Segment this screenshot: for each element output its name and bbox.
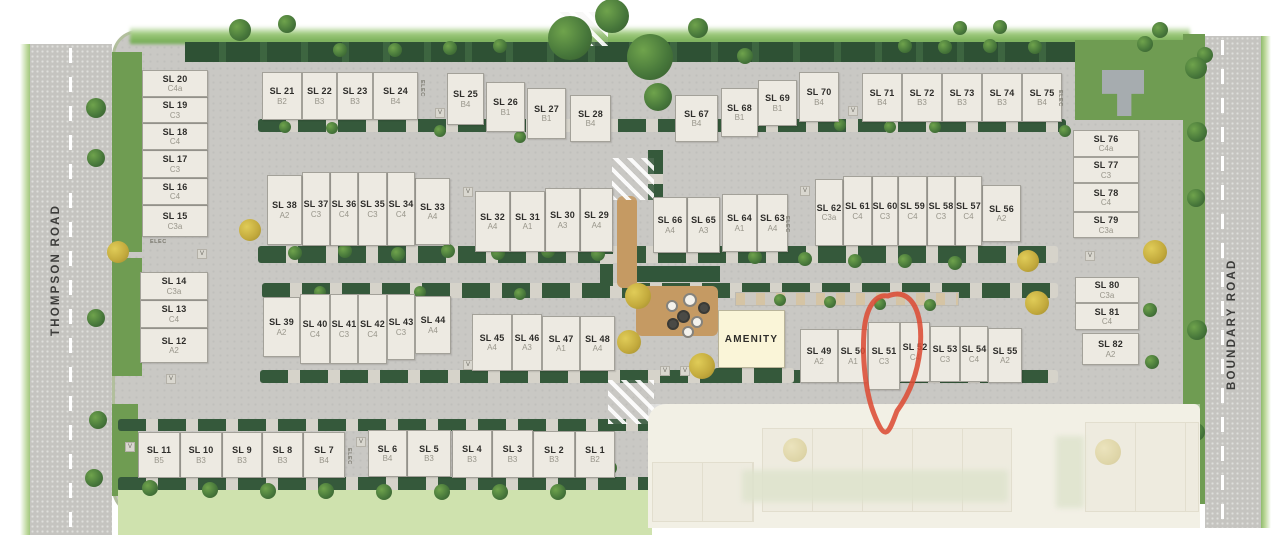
lot-plan-code: A4 — [428, 326, 438, 335]
lot-sl-79[interactable]: SL 79C3a — [1073, 212, 1139, 238]
lot-sl-32[interactable]: SL 32A4 — [475, 191, 510, 252]
lot-number: SL 75 — [1030, 88, 1055, 98]
right-road-fringe — [1261, 36, 1271, 528]
lot-number: SL 44 — [421, 315, 446, 325]
lot-plan-code: B4 — [391, 97, 401, 106]
lot-plan-code: B3 — [508, 455, 518, 464]
lot-sl-9[interactable]: SL 9B3 — [222, 432, 262, 478]
tree-icon — [493, 39, 507, 53]
tree-icon — [87, 149, 105, 167]
lot-plan-code: B4 — [383, 454, 393, 463]
lot-number: SL 29 — [584, 210, 609, 220]
lot-number: SL 24 — [383, 86, 408, 96]
lot-number: SL 46 — [515, 333, 540, 343]
lot-plan-code: B4 — [692, 119, 702, 128]
lot-sl-4[interactable]: SL 4B3 — [452, 430, 492, 478]
lot-number: SL 52 — [903, 342, 928, 352]
lot-plan-code: B4 — [1037, 98, 1047, 107]
tree-icon — [87, 309, 105, 327]
lot-sl-45[interactable]: SL 45A4 — [472, 314, 512, 371]
lot-plan-code: B3 — [237, 456, 247, 465]
lot-sl-2[interactable]: SL 2B3 — [533, 431, 575, 478]
lot-plan-code: A2 — [814, 357, 824, 366]
lot-number: SL 60 — [873, 201, 898, 211]
playground-equipment-icon — [682, 326, 694, 338]
yellow-tree-icon — [617, 330, 641, 354]
tree-icon — [983, 39, 997, 53]
lot-sl-30[interactable]: SL 30A3 — [545, 188, 580, 252]
lot-plan-code: B1 — [735, 113, 745, 122]
lot-plan-code: A1 — [523, 222, 533, 231]
lot-sl-61[interactable]: SL 61C4 — [843, 176, 872, 246]
lot-number: SL 22 — [307, 86, 332, 96]
lot-number: SL 7 — [314, 445, 334, 455]
tree-icon — [1185, 57, 1207, 79]
lot-sl-73[interactable]: SL 73B3 — [942, 73, 982, 122]
tree-icon — [929, 121, 941, 133]
tree-icon — [824, 296, 836, 308]
lot-number: SL 56 — [989, 204, 1014, 214]
lot-sl-18[interactable]: SL 18C4 — [142, 123, 208, 150]
lot-plan-code: C3 — [311, 210, 321, 219]
tree-icon — [142, 480, 158, 496]
lot-number: SL 38 — [272, 200, 297, 210]
fade-overlay — [648, 404, 1200, 528]
lot-number: SL 6 — [378, 444, 398, 454]
lot-plan-code: A3 — [558, 221, 568, 230]
tree-icon — [278, 15, 296, 33]
lot-number: SL 55 — [993, 346, 1018, 356]
lot-number: SL 61 — [845, 201, 870, 211]
tree-icon — [388, 43, 402, 57]
lot-number: SL 19 — [163, 100, 188, 110]
tree-icon — [89, 411, 107, 429]
visitor-parking-marker: V — [166, 374, 176, 384]
lot-plan-code: C4 — [910, 353, 920, 362]
lot-sl-15[interactable]: SL 15C3a — [142, 205, 208, 237]
lot-plan-code: C3 — [170, 111, 180, 120]
lot-number: SL 25 — [453, 89, 478, 99]
lot-number: SL 15 — [163, 211, 188, 221]
lot-sl-81[interactable]: SL 81C4 — [1075, 303, 1139, 330]
lot-sl-22[interactable]: SL 22B3 — [302, 72, 337, 120]
yellow-tree-icon — [239, 219, 261, 241]
lot-plan-code: C4 — [963, 212, 973, 221]
lot-sl-59[interactable]: SL 59C4 — [898, 176, 927, 246]
lot-plan-code: C3a — [168, 222, 183, 231]
lot-plan-code: A4 — [768, 224, 778, 233]
lot-plan-code: C3a — [822, 213, 837, 222]
lot-plan-code: C4 — [1101, 198, 1111, 207]
lot-number: SL 79 — [1094, 215, 1119, 225]
lot-number: SL 30 — [550, 210, 575, 220]
yellow-tree-icon — [107, 241, 129, 263]
lot-number: SL 74 — [990, 88, 1015, 98]
lot-number: SL 76 — [1094, 134, 1119, 144]
lot-plan-code: C4a — [168, 84, 183, 93]
lot-plan-code: C3a — [1100, 291, 1115, 300]
lot-sl-26[interactable]: SL 26B1 — [486, 82, 525, 132]
lot-plan-code: C3 — [339, 330, 349, 339]
tree-icon — [338, 244, 352, 258]
lot-number: SL 45 — [480, 333, 505, 343]
lot-sl-65[interactable]: SL 65A3 — [687, 197, 720, 253]
lot-sl-49[interactable]: SL 49A2 — [800, 329, 838, 383]
visitor-parking-marker: V — [800, 186, 810, 196]
lot-number: SL 39 — [269, 317, 294, 327]
lot-plan-code: B3 — [997, 98, 1007, 107]
lot-number: SL 71 — [870, 88, 895, 98]
lot-sl-52[interactable]: SL 52C4 — [900, 322, 930, 382]
lot-sl-60[interactable]: SL 60C3 — [872, 176, 898, 246]
lot-sl-69[interactable]: SL 69B1 — [758, 80, 797, 126]
lot-number: SL 41 — [332, 319, 357, 329]
crosswalk — [612, 158, 654, 200]
lot-number: SL 27 — [534, 104, 559, 114]
lot-sl-6[interactable]: SL 6B4 — [368, 430, 407, 477]
lot-number: SL 31 — [515, 212, 540, 222]
lot-sl-37[interactable]: SL 37C3 — [302, 172, 330, 246]
tree-icon — [514, 288, 526, 300]
lot-plan-code: A4 — [428, 212, 438, 221]
lot-number: SL 59 — [900, 201, 925, 211]
lot-number: SL 16 — [163, 182, 188, 192]
lot-sl-76[interactable]: SL 76C4a — [1073, 130, 1139, 157]
lot-number: SL 67 — [684, 109, 709, 119]
lot-sl-31[interactable]: SL 31A1 — [510, 191, 545, 252]
tree-icon — [1059, 125, 1071, 137]
tree-icon — [550, 484, 566, 500]
lot-sl-62[interactable]: SL 62C3a — [815, 179, 843, 246]
lot-sl-75[interactable]: SL 75B4 — [1022, 73, 1062, 122]
visitor-parking-marker: V — [197, 249, 207, 259]
lot-plan-code: A1 — [848, 357, 858, 366]
lot-number: SL 32 — [480, 212, 505, 222]
tree-icon — [318, 483, 334, 499]
lot-number: SL 23 — [343, 86, 368, 96]
tree-icon — [884, 121, 896, 133]
lot-sl-10[interactable]: SL 10B3 — [180, 432, 222, 478]
lot-sl-35[interactable]: SL 35C3 — [358, 172, 387, 246]
lot-number: SL 51 — [872, 346, 897, 356]
lot-plan-code: C4a — [1099, 144, 1114, 153]
lot-number: SL 49 — [807, 346, 832, 356]
lot-sl-40[interactable]: SL 40C4 — [300, 294, 330, 364]
lot-sl-66[interactable]: SL 66A4 — [653, 197, 687, 253]
lot-plan-code: A1 — [735, 224, 745, 233]
road-centerline — [1221, 40, 1224, 524]
lot-sl-23[interactable]: SL 23B3 — [337, 72, 373, 120]
lot-sl-50[interactable]: SL 50A1 — [838, 329, 868, 383]
lot-number: SL 73 — [950, 88, 975, 98]
lot-sl-78[interactable]: SL 78C4 — [1073, 183, 1139, 212]
lot-plan-code: B4 — [319, 456, 329, 465]
lot-sl-12[interactable]: SL 12A2 — [140, 328, 208, 363]
tree-icon — [333, 43, 347, 57]
yellow-tree-icon — [1017, 250, 1039, 272]
visitor-parking-marker: V — [848, 106, 858, 116]
lot-sl-8[interactable]: SL 8B3 — [262, 432, 303, 478]
lot-sl-48[interactable]: SL 48A4 — [580, 316, 615, 371]
lot-sl-43[interactable]: SL 43C3 — [387, 294, 415, 360]
lot-plan-code: C4 — [170, 137, 180, 146]
lot-sl-67[interactable]: SL 67B4 — [675, 95, 718, 142]
lot-plan-code: C3a — [1099, 226, 1114, 235]
lot-number: SL 72 — [910, 88, 935, 98]
visitor-parking-marker: V — [463, 187, 473, 197]
lot-plan-code: B4 — [461, 100, 471, 109]
tree-icon — [443, 41, 457, 55]
tree-icon — [326, 122, 338, 134]
lot-plan-code: A4 — [593, 344, 603, 353]
tree-icon — [260, 483, 276, 499]
lot-number: SL 8 — [273, 445, 293, 455]
tree-icon — [514, 131, 526, 143]
lot-number: SL 4 — [462, 444, 482, 454]
tree-icon — [434, 484, 450, 500]
lot-plan-code: B1 — [773, 104, 783, 113]
lot-number: SL 21 — [270, 86, 295, 96]
lot-number: SL 18 — [163, 127, 188, 137]
lot-sl-33[interactable]: SL 33A4 — [415, 178, 450, 245]
lot-sl-21[interactable]: SL 21B2 — [262, 72, 302, 120]
lot-number: SL 3 — [503, 444, 523, 454]
lot-sl-80[interactable]: SL 80C3a — [1075, 277, 1139, 303]
tree-icon — [1152, 22, 1168, 38]
lot-plan-code: B1 — [542, 114, 552, 123]
lot-plan-code: B3 — [917, 98, 927, 107]
tree-icon — [548, 16, 592, 60]
tree-icon — [898, 39, 912, 53]
lot-sl-1[interactable]: SL 1B2 — [575, 431, 615, 478]
lot-plan-code: B3 — [467, 455, 477, 464]
playground-equipment-icon — [667, 318, 679, 330]
lot-sl-20[interactable]: SL 20C4a — [142, 70, 208, 97]
tree-icon — [85, 469, 103, 487]
tree-icon — [1187, 189, 1205, 207]
visitor-parking-marker: V — [356, 437, 366, 447]
lot-number: SL 68 — [727, 103, 752, 113]
lot-plan-code: B4 — [814, 98, 824, 107]
tree-icon — [627, 34, 673, 80]
playground-equipment-icon — [691, 316, 703, 328]
tree-icon — [688, 18, 708, 38]
lot-plan-code: B2 — [277, 97, 287, 106]
road-centerline — [69, 48, 72, 531]
playground-equipment-icon — [666, 300, 678, 312]
tree-icon — [938, 40, 952, 54]
elec-marker: ELEC — [784, 216, 790, 233]
lot-number: SL 43 — [389, 317, 414, 327]
thompson-road-label: THOMPSON ROAD — [50, 204, 62, 336]
lot-sl-25[interactable]: SL 25B4 — [447, 73, 484, 125]
lot-sl-28[interactable]: SL 28B4 — [570, 95, 611, 142]
lot-sl-47[interactable]: SL 47A1 — [542, 316, 580, 371]
lot-number: SL 20 — [163, 74, 188, 84]
lot-plan-code: B1 — [501, 108, 511, 117]
tree-icon — [434, 125, 446, 137]
tree-icon — [948, 256, 962, 270]
lot-plan-code: C3 — [170, 165, 180, 174]
lot-plan-code: A1 — [556, 344, 566, 353]
sand-path — [617, 196, 637, 288]
lot-plan-code: C3 — [367, 210, 377, 219]
lot-number: SL 13 — [162, 304, 187, 314]
lot-number: SL 10 — [189, 445, 214, 455]
lot-number: SL 78 — [1094, 188, 1119, 198]
lot-number: SL 2 — [544, 445, 564, 455]
lot-sl-16[interactable]: SL 16C4 — [142, 178, 208, 205]
lot-sl-74[interactable]: SL 74B3 — [982, 73, 1022, 122]
visitor-parking-marker: V — [463, 360, 473, 370]
lot-number: SL 81 — [1095, 307, 1120, 317]
lot-sl-58[interactable]: SL 58C3 — [927, 176, 955, 246]
lot-plan-code: A2 — [997, 214, 1007, 223]
lot-number: SL 57 — [956, 201, 981, 211]
lot-sl-13[interactable]: SL 13C4 — [140, 300, 208, 328]
lot-sl-51[interactable]: SL 51C3 — [868, 322, 900, 390]
lot-sl-7[interactable]: SL 7B4 — [303, 432, 345, 478]
lot-plan-code: A3 — [522, 343, 532, 352]
lot-sl-27[interactable]: SL 27B1 — [527, 88, 566, 139]
playground-hedge — [636, 266, 720, 282]
left-lawn — [112, 52, 142, 252]
tree-icon — [1187, 122, 1207, 142]
playground-equipment-icon — [698, 302, 710, 314]
lot-sl-57[interactable]: SL 57C4 — [955, 176, 982, 246]
lot-sl-70[interactable]: SL 70B4 — [799, 72, 839, 122]
lot-sl-39[interactable]: SL 39A2 — [263, 297, 300, 357]
tree-icon — [874, 298, 886, 310]
lot-sl-14[interactable]: SL 14C3a — [140, 272, 208, 300]
lot-plan-code: A4 — [488, 222, 498, 231]
tree-icon — [441, 244, 455, 258]
lot-plan-code: C3 — [936, 212, 946, 221]
lot-plan-code: C3 — [880, 212, 890, 221]
lot-plan-code: A2 — [280, 211, 290, 220]
lot-sl-19[interactable]: SL 19C3 — [142, 97, 208, 123]
lot-plan-code: A2 — [1106, 350, 1116, 359]
lot-sl-77[interactable]: SL 77C3 — [1073, 157, 1139, 183]
lot-number: SL 65 — [691, 215, 716, 225]
lot-number: SL 77 — [1094, 160, 1119, 170]
lot-sl-29[interactable]: SL 29A4 — [580, 188, 613, 252]
tree-icon — [1137, 36, 1153, 52]
lot-plan-code: C4 — [367, 330, 377, 339]
lot-sl-24[interactable]: SL 24B4 — [373, 72, 418, 120]
lot-number: SL 36 — [332, 199, 357, 209]
tree-icon — [492, 484, 508, 500]
lot-plan-code: C4 — [170, 192, 180, 201]
lot-sl-36[interactable]: SL 36C4 — [330, 172, 358, 246]
lot-plan-code: C4 — [339, 210, 349, 219]
elec-marker: ELEC — [150, 239, 167, 245]
lot-sl-55[interactable]: SL 55A2 — [988, 328, 1022, 383]
lot-sl-3[interactable]: SL 3B3 — [492, 430, 533, 478]
lot-sl-56[interactable]: SL 56A2 — [982, 185, 1021, 242]
visitor-parking-marker: V — [1085, 251, 1095, 261]
visitor-parking-marker: V — [660, 366, 670, 376]
lot-sl-46[interactable]: SL 46A3 — [512, 314, 542, 371]
lot-plan-code: B4 — [586, 119, 596, 128]
amenity-building: AMENITY — [718, 310, 785, 368]
lot-plan-code: B3 — [278, 456, 288, 465]
lot-sl-68[interactable]: SL 68B1 — [721, 88, 758, 137]
lot-number: SL 35 — [360, 199, 385, 209]
lot-sl-64[interactable]: SL 64A1 — [722, 194, 757, 252]
elec-marker: ELEC — [419, 80, 425, 97]
tree-icon — [898, 254, 912, 268]
lot-sl-5[interactable]: SL 5B3 — [407, 430, 451, 477]
lot-plan-code: C3 — [1101, 171, 1111, 180]
tree-icon — [288, 246, 302, 260]
lot-number: SL 17 — [163, 154, 188, 164]
lot-sl-44[interactable]: SL 44A4 — [415, 296, 451, 354]
playground-equipment-icon — [683, 293, 697, 307]
lot-sl-72[interactable]: SL 72B3 — [902, 73, 942, 122]
elec-marker: ELEC — [346, 448, 352, 465]
lot-number: SL 47 — [549, 334, 574, 344]
yellow-tree-icon — [625, 283, 651, 309]
lot-sl-54[interactable]: SL 54C4 — [960, 326, 988, 382]
lot-number: SL 37 — [304, 199, 329, 209]
lot-number: SL 5 — [419, 444, 439, 454]
lot-number: SL 14 — [162, 276, 187, 286]
lot-plan-code: A2 — [169, 346, 179, 355]
tree-icon — [924, 299, 936, 311]
lot-number: SL 80 — [1095, 280, 1120, 290]
tree-icon — [993, 20, 1007, 34]
lot-number: SL 11 — [147, 445, 171, 455]
lot-plan-code: B3 — [549, 455, 559, 464]
tree-icon — [774, 294, 786, 306]
lot-number: SL 48 — [585, 334, 610, 344]
lot-sl-34[interactable]: SL 34C4 — [387, 172, 415, 246]
yellow-tree-icon — [689, 353, 715, 379]
lot-plan-code: C4 — [396, 210, 406, 219]
lot-sl-11[interactable]: SL 11B5 — [138, 432, 180, 478]
tree-icon — [848, 254, 862, 268]
tree-icon — [1145, 355, 1159, 369]
lot-plan-code: A3 — [699, 226, 709, 235]
tree-icon — [1028, 40, 1042, 54]
tree-icon — [279, 121, 291, 133]
lot-number: SL 26 — [493, 97, 518, 107]
lot-plan-code: C3a — [167, 287, 182, 296]
tree-icon — [1187, 320, 1207, 340]
lot-sl-53[interactable]: SL 53C3 — [930, 326, 960, 382]
lot-plan-code: B2 — [590, 455, 600, 464]
tree-icon — [953, 21, 967, 35]
tree-icon — [1143, 303, 1157, 317]
lot-sl-82[interactable]: SL 82A2 — [1082, 333, 1139, 365]
lot-sl-17[interactable]: SL 17C3 — [142, 150, 208, 178]
lot-sl-42[interactable]: SL 42C4 — [358, 294, 387, 364]
lot-plan-code: A4 — [592, 221, 602, 230]
tree-icon — [798, 252, 812, 266]
tree-icon — [391, 247, 405, 261]
yellow-tree-icon — [1025, 291, 1049, 315]
lot-sl-71[interactable]: SL 71B4 — [862, 73, 902, 122]
lot-sl-38[interactable]: SL 38A2 — [267, 175, 302, 245]
lot-number: SL 69 — [765, 93, 790, 103]
tree-icon — [229, 19, 251, 41]
lot-plan-code: B3 — [957, 98, 967, 107]
lot-plan-code: C4 — [169, 315, 179, 324]
lot-number: SL 40 — [303, 319, 328, 329]
lot-sl-41[interactable]: SL 41C3 — [330, 294, 358, 364]
tree-icon — [748, 250, 762, 264]
